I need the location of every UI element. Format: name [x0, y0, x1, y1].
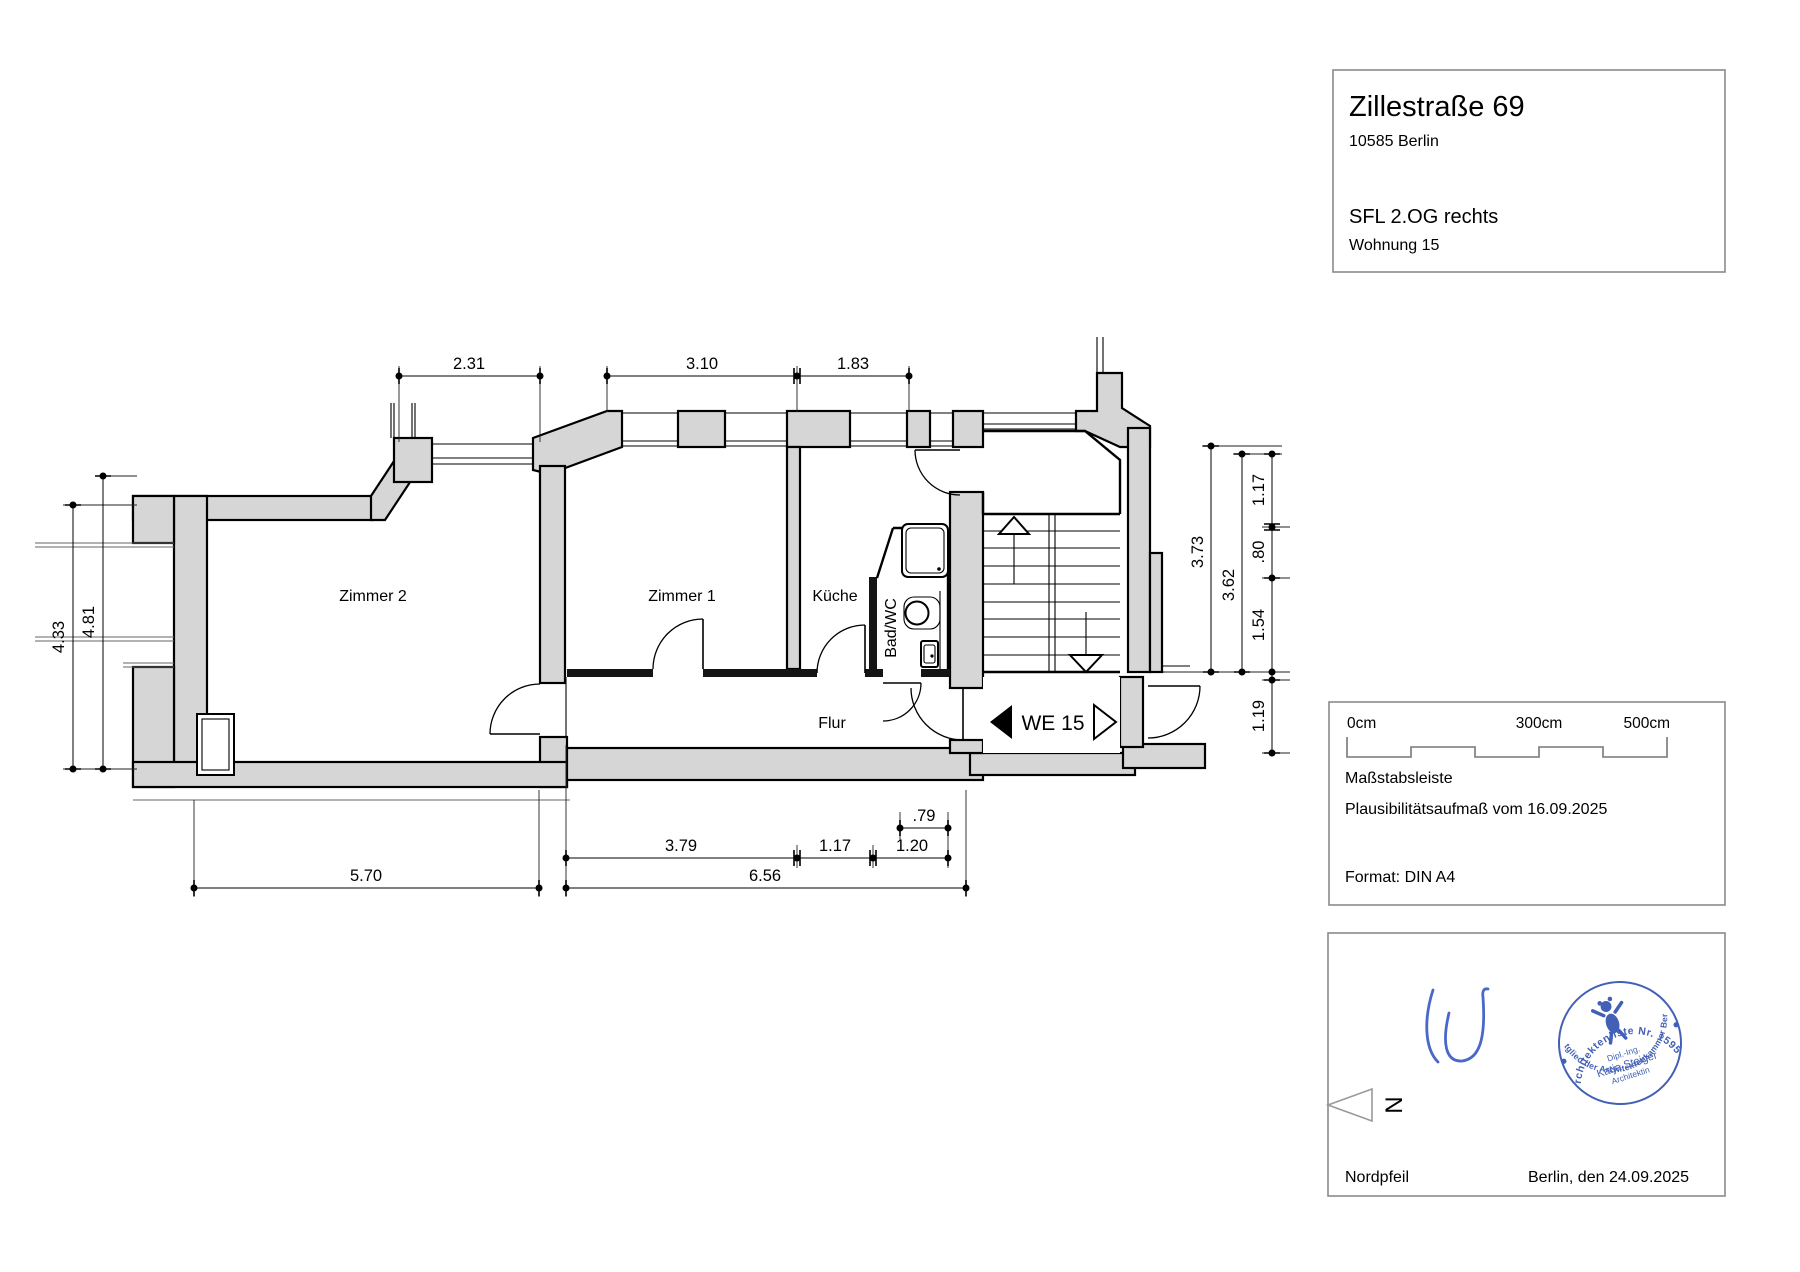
wall-strip-landing-right: [1120, 677, 1143, 747]
dim-top-183: 1.83: [837, 355, 869, 373]
floor-plan-page: WE 15 Zimmer 2 Zimmer 1 Küche Flur Bad/W…: [0, 0, 1800, 1272]
stairs-boundary: [983, 431, 1120, 672]
washbasin: [906, 602, 929, 625]
shower-drain: [937, 567, 941, 571]
title-street: Zillestraße 69: [1349, 91, 1525, 123]
we15-label: WE 15: [1021, 712, 1084, 735]
room-labels: Zimmer 2 Zimmer 1 Küche Flur Bad/WC: [339, 588, 900, 732]
dim-bottom-79: .79: [913, 807, 936, 825]
title-unit: Wohnung 15: [1349, 237, 1440, 254]
dim-right-117: 1.17: [1250, 474, 1268, 506]
staircase: [983, 431, 1120, 672]
wall-flur-2: [703, 669, 817, 677]
stair-up-arrow-icon: [999, 517, 1029, 534]
dimension-dots: [73, 376, 1272, 888]
wall-bad-left: [869, 577, 877, 677]
scale-tick-500: 500cm: [1623, 715, 1670, 732]
stair-down-arrow-icon: [1070, 655, 1102, 672]
label-flur: Flur: [818, 715, 846, 732]
label-zimmer2: Zimmer 2: [339, 588, 407, 605]
wall-stairwell-right-step: [1150, 553, 1162, 672]
dim-top-310: 3.10: [686, 355, 718, 373]
dimension-chain-lines: [73, 376, 1272, 888]
dim-top-231: 2.31: [453, 355, 485, 373]
wall-bay-diagonal-right: [533, 411, 622, 474]
wall-bottom-we15: [970, 753, 1135, 775]
wall-left-outer-top: [133, 496, 174, 543]
dim-bottom-117: 1.17: [819, 837, 851, 855]
fixtures: [197, 524, 948, 775]
door-arc-zimmer2: [490, 684, 540, 734]
door-arc-landing-kueche: [915, 450, 960, 495]
radiator-zimmer2: [197, 714, 234, 775]
party-wall-stubs: [391, 337, 1103, 438]
wall-pier-zimmer1-kueche: [787, 411, 850, 447]
dim-right-362: 3.62: [1220, 569, 1238, 601]
wall-flur-1: [567, 669, 653, 677]
scale-tick-0: 0cm: [1347, 715, 1376, 732]
door-arc-bad: [883, 683, 921, 721]
wall-bottom-flur: [567, 748, 983, 780]
scale-format: Format: DIN A4: [1345, 869, 1455, 886]
scale-tick-300: 300cm: [1516, 715, 1563, 732]
wall-flur-4: [921, 669, 950, 677]
wall-stairs-left-stub: [950, 740, 983, 753]
we15-entrance: WE 15: [983, 677, 1120, 753]
wall-cut-lines-right: [1162, 666, 1190, 672]
dim-bottom-379: 3.79: [665, 837, 697, 855]
stair-treads: [983, 531, 1120, 655]
wall-pier-zimmer1: [678, 411, 725, 447]
dim-right-119: 1.19: [1250, 700, 1268, 732]
dimension-ticks: [65, 368, 1280, 896]
floor-plan-drawing: WE 15 Zimmer 2 Zimmer 1 Küche Flur Bad/W…: [0, 0, 1800, 1272]
dim-right-154: 1.54: [1250, 609, 1268, 641]
wall-pier-kueche: [907, 411, 930, 447]
north-letter: N: [1380, 1096, 1407, 1113]
door-arc-zimmer1: [653, 619, 703, 669]
stamp-date: Berlin, den 24.09.2025: [1528, 1169, 1689, 1186]
stair-stringers: [1014, 514, 1086, 672]
label-kueche: Küche: [812, 588, 857, 605]
dim-right-80: .80: [1250, 541, 1268, 564]
door-arc-landing-right: [1148, 686, 1200, 738]
landing-window-glazing: [983, 413, 1076, 429]
wall-pier-landing: [953, 411, 983, 447]
stamp-box-frame: [1328, 933, 1725, 1196]
dim-bottom-120: 1.20: [896, 837, 928, 855]
dim-left-433: 4.33: [50, 621, 68, 653]
wall-stairwell-right: [1128, 428, 1150, 672]
dim-bottom-570: 5.70: [350, 867, 382, 885]
title-block: Zillestraße 69 10585 Berlin SFL 2.OG rec…: [1333, 70, 1725, 272]
bay-window-glazing: [432, 438, 533, 470]
wall-stairs-left: [950, 492, 983, 688]
scale-box: 0cm 300cm 500cm Maßstabsleiste Plausibil…: [1329, 702, 1725, 905]
wall-zimmer1-kueche: [787, 447, 800, 669]
dim-left-481: 4.81: [80, 606, 98, 638]
door-arc-kueche: [817, 625, 865, 673]
title-city: 10585 Berlin: [1349, 133, 1439, 150]
dim-right-373: 3.73: [1189, 536, 1207, 568]
wc-dot: [930, 654, 933, 657]
label-bad: Bad/WC: [883, 598, 900, 658]
north-label: Nordpfeil: [1345, 1169, 1409, 1186]
scale-note: Plausibilitätsaufmaß vom 16.09.2025: [1345, 801, 1607, 818]
scale-label: Maßstabsleiste: [1345, 770, 1453, 787]
dim-bottom-656: 6.56: [749, 867, 781, 885]
label-zimmer1: Zimmer 1: [648, 588, 716, 605]
wall-bay-pier: [394, 438, 432, 482]
title-floor: SFL 2.OG rechts: [1349, 206, 1498, 228]
shower-tray: [902, 524, 948, 577]
wall-zimmer2-zimmer1: [540, 466, 565, 683]
